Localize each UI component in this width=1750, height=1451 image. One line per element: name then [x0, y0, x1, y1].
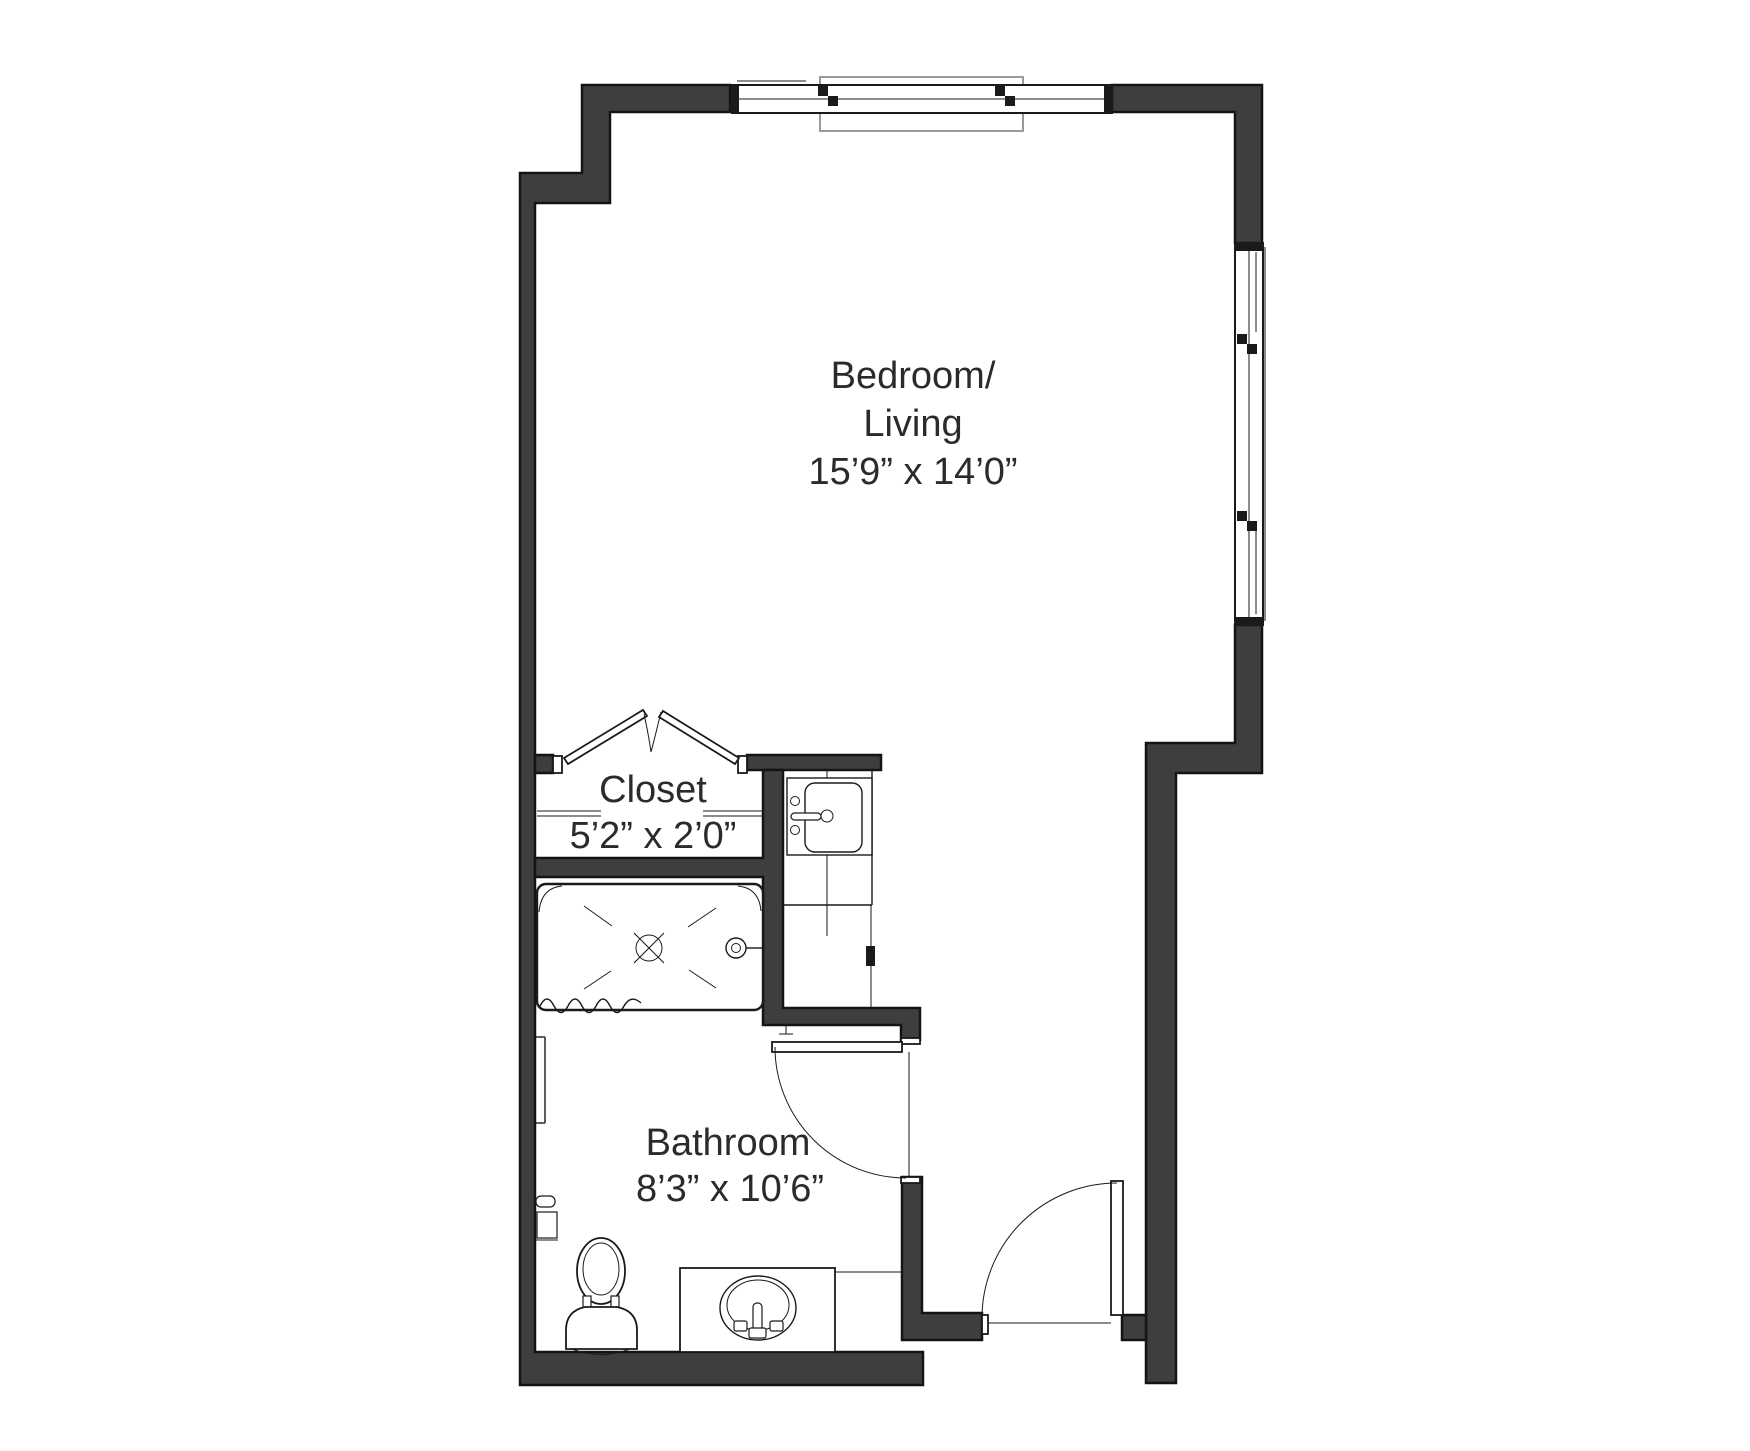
- floor-plan-page: Bedroom/ Living 15’9” x 14’0” Closet 5’2…: [0, 0, 1750, 1451]
- page-background: [0, 0, 1750, 1451]
- bathroom-label: Bathroom: [646, 1122, 811, 1164]
- bedroom-living-label-line2: Living: [863, 403, 962, 445]
- faucet-lever: [791, 813, 821, 820]
- bathroom-dimensions: 8’3” x 10’6”: [636, 1168, 824, 1210]
- closet-label: Closet: [599, 769, 707, 811]
- shower: [537, 884, 763, 1013]
- toilet-paper-holder: [536, 1196, 558, 1240]
- toilet-bowl-outer: [577, 1238, 625, 1304]
- bedroom-living-label-line1: Bedroom/: [831, 355, 996, 397]
- entry-door-leaf: [1111, 1181, 1123, 1315]
- bathroom-door-leaf: [772, 1042, 902, 1052]
- entry-jamb-left: [982, 1315, 988, 1334]
- bathroom-jamb-top: [901, 1038, 920, 1044]
- wall-closet-left-stub: [535, 755, 553, 773]
- toilet-tank: [566, 1307, 637, 1349]
- alcove-stop-block: [866, 946, 875, 966]
- right-window-mullion-end-top: [1234, 243, 1264, 251]
- closet-jamb-left: [553, 756, 562, 773]
- wall-alcove-top: [747, 755, 881, 770]
- wall-entry-stub: [1122, 1315, 1146, 1340]
- right-window: [1234, 243, 1265, 625]
- bedroom-living-dimensions: 15’9” x 14’0”: [808, 451, 1017, 493]
- top-window-mullion-end-left: [731, 84, 739, 114]
- top-window-mullion-end-right: [1104, 84, 1112, 114]
- closet-dimensions: 5’2” x 2’0”: [570, 815, 737, 857]
- right-window-mullion-end-bottom: [1234, 617, 1264, 625]
- kitchenette-sink: [787, 778, 872, 855]
- floor-plan-canvas: Bedroom/ Living 15’9” x 14’0” Closet 5’2…: [0, 0, 1750, 1451]
